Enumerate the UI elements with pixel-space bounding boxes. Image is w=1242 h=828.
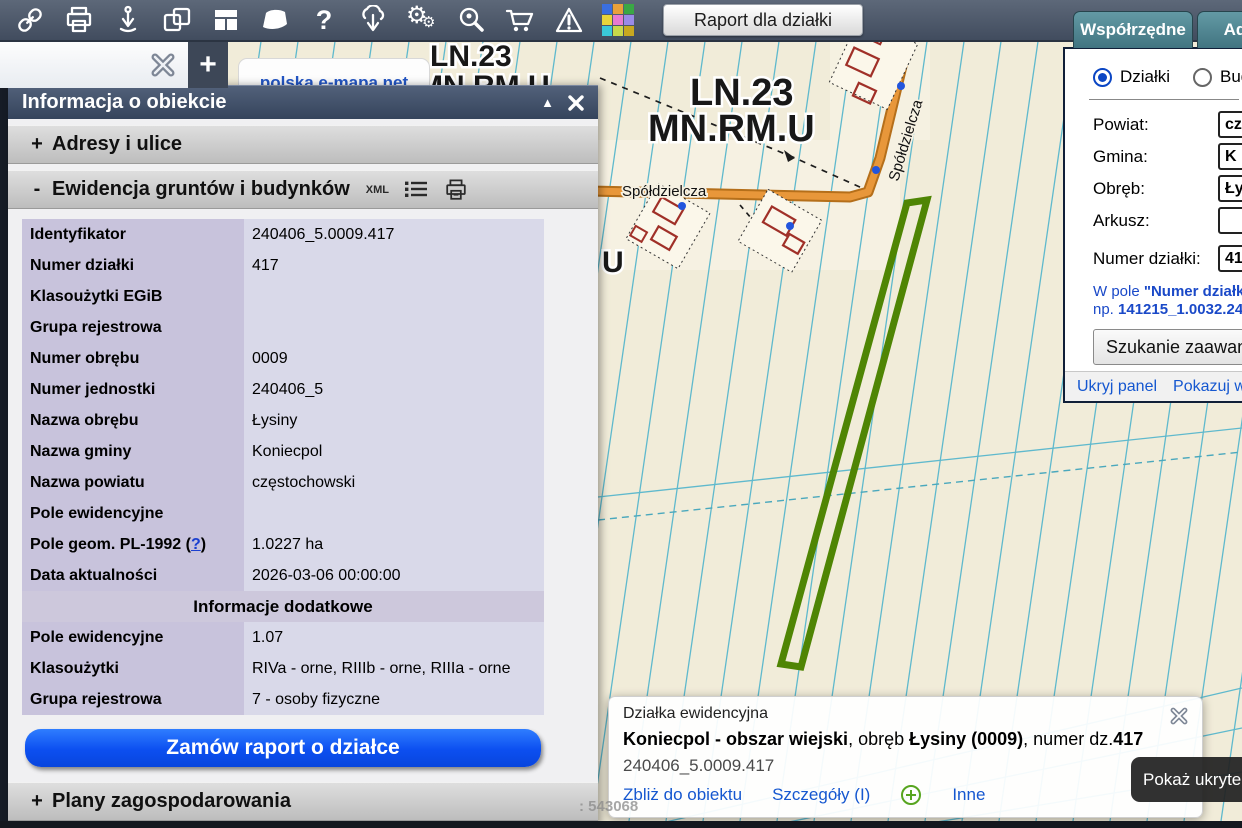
link-icon[interactable] bbox=[14, 4, 46, 36]
show-results-link[interactable]: Pokazuj w bbox=[1173, 378, 1242, 396]
zone2-label-line1: LN.23 bbox=[430, 40, 512, 73]
parcel-popup: Działka ewidencyjna Koniecpol - obszar w… bbox=[608, 696, 1203, 818]
search-panel-footer: Ukryj panel Pokazuj w bbox=[1065, 371, 1242, 401]
copy-icon[interactable] bbox=[161, 4, 193, 36]
order-report-button[interactable]: Zamów raport o działce bbox=[25, 729, 541, 767]
field-label-powiat: Powiat: bbox=[1093, 115, 1149, 135]
table-row: Nazwa obrębuŁysiny bbox=[22, 405, 544, 436]
close-panel-icon[interactable] bbox=[568, 95, 584, 111]
table-row: Grupa rejestrowa bbox=[22, 312, 544, 343]
show-hidden-toast[interactable]: Pokaż ukryte bbox=[1131, 757, 1242, 802]
close-tab-icon[interactable] bbox=[148, 50, 178, 80]
window-tabstrip: + bbox=[0, 42, 228, 88]
window-bottom-edge bbox=[0, 821, 1242, 828]
print-section-icon[interactable] bbox=[443, 178, 469, 202]
street-label-h: Spółdzielcza bbox=[622, 183, 707, 200]
table-row: Nazwa powiatuczęstochowski bbox=[22, 467, 544, 498]
object-info-panel: Informacja o obiekcie ▲ + Adresy i ulice… bbox=[8, 85, 598, 828]
section-egib-label: Ewidencja gruntów i budynków bbox=[52, 178, 350, 201]
expand-icon: + bbox=[22, 133, 52, 156]
table-row: Data aktualności2026-03-06 00:00:00 bbox=[22, 560, 544, 591]
table-subheader: Informacje dodatkowe bbox=[22, 591, 544, 622]
table-row: Numer jednostki240406_5 bbox=[22, 374, 544, 405]
map-coordinate-text: : 543068 bbox=[579, 798, 638, 815]
add-plus-icon[interactable] bbox=[900, 784, 922, 806]
field-label-arkusz: Arkusz: bbox=[1093, 211, 1150, 231]
geom-help-link[interactable]: ? bbox=[191, 536, 201, 553]
section-adresy[interactable]: + Adresy i ulice bbox=[8, 125, 598, 164]
parcel-search-panel: Działki Bud Powiat: Gmina: Obręb: Arkusz… bbox=[1063, 47, 1242, 403]
table-row: Klasoużytki EGiB bbox=[22, 281, 544, 312]
warning-icon[interactable] bbox=[553, 4, 585, 36]
settings-icon[interactable]: ⚙⚙ bbox=[406, 4, 438, 36]
panel-titlebar[interactable]: Informacja o obiekcie ▲ bbox=[8, 85, 598, 119]
collapse-minus-icon: - bbox=[22, 178, 52, 201]
help-icon[interactable]: ? bbox=[308, 4, 340, 36]
numer-dzialki-input[interactable] bbox=[1218, 245, 1242, 272]
cart-icon[interactable] bbox=[504, 4, 536, 36]
radio-buildings[interactable] bbox=[1193, 68, 1212, 87]
collapse-panel-icon[interactable]: ▲ bbox=[541, 95, 554, 110]
expand-icon: + bbox=[22, 790, 52, 813]
tab-coordinates[interactable]: Współrzędne bbox=[1073, 11, 1193, 48]
field-label-obreb: Obręb: bbox=[1093, 179, 1145, 199]
zone-label-u: U bbox=[602, 246, 624, 279]
help-text-line2: np. 141215_1.0032.24 bbox=[1093, 301, 1242, 319]
xml-export-icon[interactable]: XML bbox=[366, 184, 389, 196]
pin-download-icon[interactable] bbox=[112, 4, 144, 36]
field-label-numer: Numer działki: bbox=[1093, 249, 1201, 269]
palette-icon[interactable] bbox=[602, 4, 634, 36]
radio-parcels-label: Działki bbox=[1120, 67, 1170, 87]
list-view-icon[interactable] bbox=[404, 179, 428, 201]
arkusz-input[interactable] bbox=[1218, 207, 1242, 234]
geoportal-app: LN.23 MN.RM.U LN.23 MN.RM.U U Spółdzielc… bbox=[0, 0, 1242, 828]
search-location-icon[interactable] bbox=[455, 4, 487, 36]
divider bbox=[1089, 99, 1239, 100]
zoom-to-object-link[interactable]: Zbliż do obiektu bbox=[623, 785, 742, 805]
parcel-attributes-table: Identyfikator240406_5.0009.417 Numer dzi… bbox=[22, 219, 544, 715]
powiat-input[interactable] bbox=[1218, 111, 1242, 138]
help-text-line1: W pole "Numer działki" bbox=[1093, 283, 1242, 301]
obreb-input[interactable] bbox=[1218, 175, 1242, 202]
tab-addresses[interactable]: Adre bbox=[1197, 11, 1242, 48]
details-link[interactable]: Szczegóły (I) bbox=[772, 785, 870, 805]
zone-label-line2: MN.RM.U bbox=[648, 108, 815, 150]
panel-title: Informacja o obiekcie bbox=[22, 91, 227, 114]
report-parcel-button[interactable]: Raport dla działki bbox=[663, 4, 863, 36]
advanced-search-button[interactable]: Szukanie zaawans bbox=[1093, 329, 1242, 365]
add-tab-button[interactable]: + bbox=[188, 42, 228, 88]
field-label-gmina: Gmina: bbox=[1093, 147, 1148, 167]
radio-buildings-label: Bud bbox=[1220, 67, 1242, 87]
popup-object-id: 240406_5.0009.417 bbox=[623, 756, 1188, 776]
table-row: Grupa rejestrowa7 - osoby fizyczne bbox=[22, 684, 544, 715]
section-egib[interactable]: - Ewidencja gruntów i budynków XML bbox=[8, 170, 598, 209]
gmina-input[interactable] bbox=[1218, 143, 1242, 170]
table-row: Identyfikator240406_5.0009.417 bbox=[22, 219, 544, 250]
cloud-download-icon[interactable] bbox=[357, 4, 389, 36]
radio-parcels[interactable] bbox=[1093, 68, 1112, 87]
popup-close-icon[interactable] bbox=[1168, 705, 1190, 727]
table-row: Pole ewidencyjne1.07 bbox=[22, 622, 544, 653]
popup-title: Koniecpol - obszar wiejski, obręb Łysiny… bbox=[623, 729, 1188, 750]
print-icon[interactable] bbox=[63, 4, 95, 36]
table-row: Numer obrębu0009 bbox=[22, 343, 544, 374]
table-row: Nazwa gminyKoniecpol bbox=[22, 436, 544, 467]
other-link[interactable]: Inne bbox=[952, 785, 985, 805]
hide-panel-link[interactable]: Ukryj panel bbox=[1077, 378, 1157, 396]
table-row: KlasoużytkiRIVa - orne, RIIIb - orne, RI… bbox=[22, 653, 544, 684]
section-plany[interactable]: + Plany zagospodarowania bbox=[8, 782, 598, 821]
popup-type-label: Działka ewidencyjna bbox=[623, 705, 1188, 723]
table-row-geom: Pole geom. PL-1992 (?) 1.0227 ha bbox=[22, 529, 544, 560]
table-row: Numer działki417 bbox=[22, 250, 544, 281]
main-toolbar: ? ⚙⚙ Raport dla działki bbox=[0, 0, 1242, 42]
section-plany-label: Plany zagospodarowania bbox=[52, 790, 291, 813]
layout-icon[interactable] bbox=[210, 4, 242, 36]
section-adresy-label: Adresy i ulice bbox=[52, 133, 182, 156]
table-row: Pole ewidencyjne bbox=[22, 498, 544, 529]
polygon-icon[interactable] bbox=[259, 4, 291, 36]
